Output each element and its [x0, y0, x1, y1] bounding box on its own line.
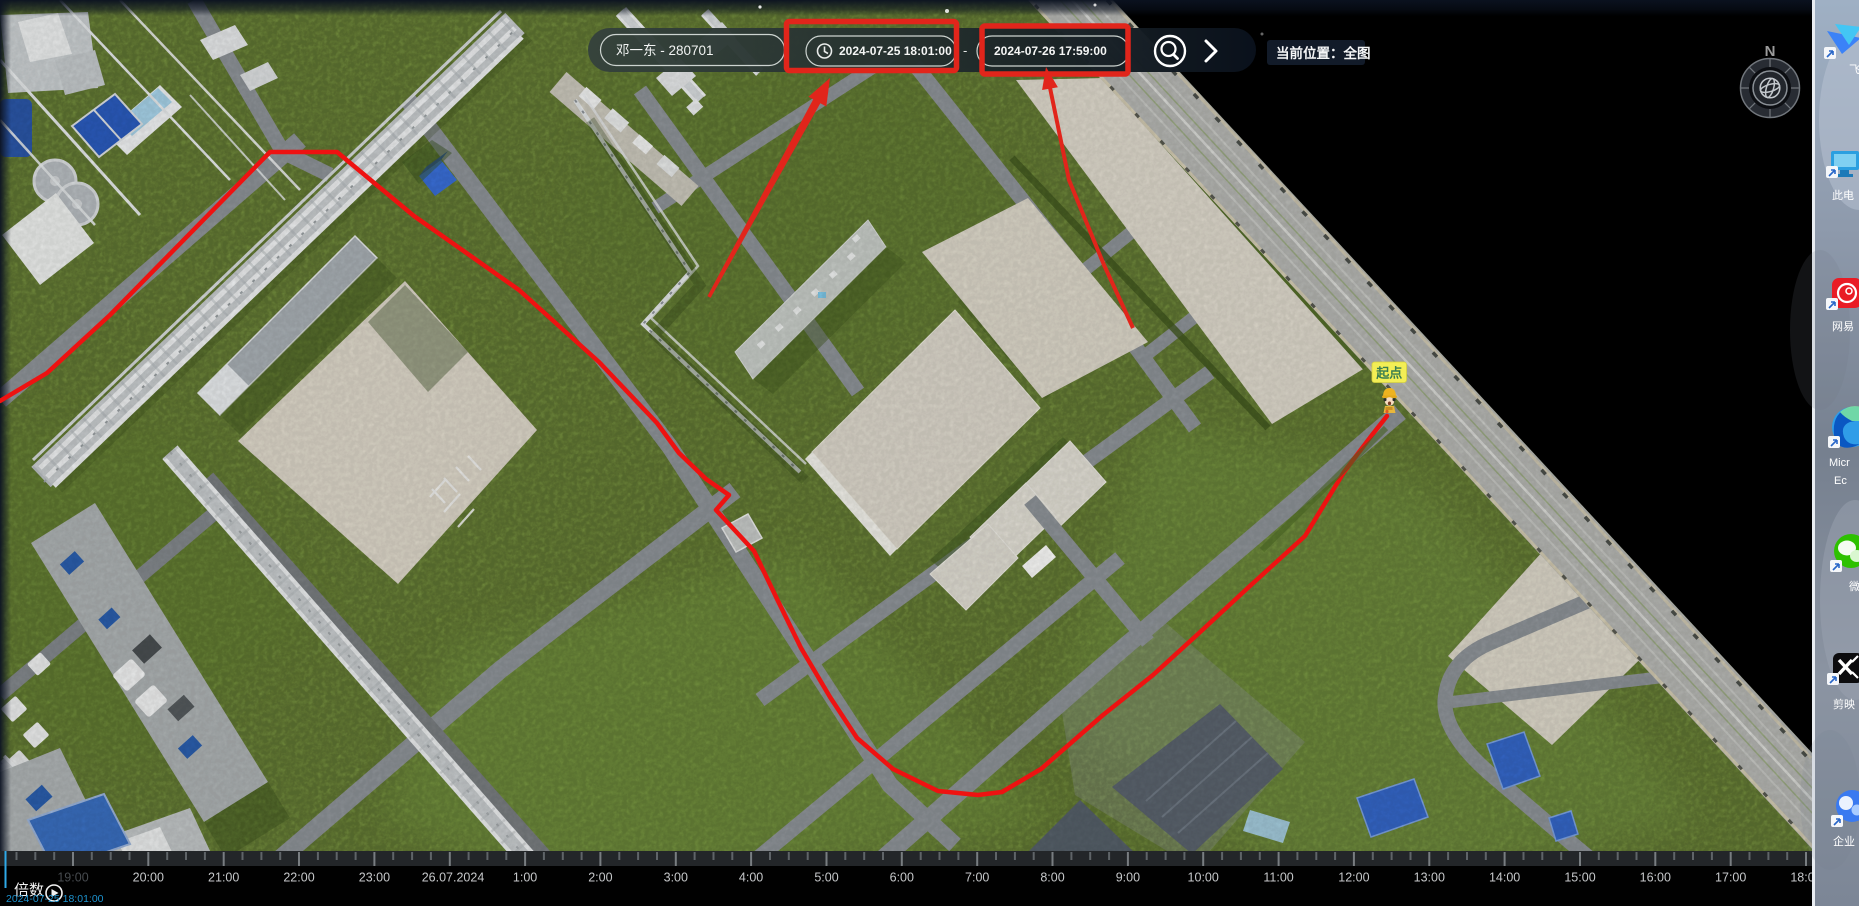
- svg-text:起点: 起点: [1375, 365, 1402, 380]
- svg-text:21:00: 21:00: [208, 871, 239, 885]
- svg-text:2024-07-25 18:01:00: 2024-07-25 18:01:00: [839, 44, 952, 58]
- svg-text:19:00: 19:00: [57, 871, 88, 885]
- svg-text:26.07.2024: 26.07.2024: [422, 871, 485, 885]
- svg-text:此电: 此电: [1832, 189, 1854, 202]
- svg-text:-: -: [963, 43, 967, 58]
- svg-text:网易: 网易: [1832, 320, 1854, 333]
- svg-text:5:00: 5:00: [814, 871, 838, 885]
- svg-text:6:00: 6:00: [890, 871, 914, 885]
- svg-text:20:00: 20:00: [133, 871, 164, 885]
- svg-text:1:00: 1:00: [513, 871, 537, 885]
- svg-text:4:00: 4:00: [739, 871, 763, 885]
- svg-text:当前位置：全图: 当前位置：全图: [1276, 45, 1371, 61]
- svg-text:12:00: 12:00: [1338, 871, 1369, 885]
- svg-text:7:00: 7:00: [965, 871, 989, 885]
- svg-text:邓一东 - 280701: 邓一东 - 280701: [616, 43, 714, 58]
- svg-text:11:00: 11:00: [1263, 871, 1293, 885]
- svg-text:23:00: 23:00: [359, 871, 390, 885]
- svg-text:16:00: 16:00: [1640, 871, 1671, 885]
- svg-text:14:00: 14:00: [1489, 871, 1520, 885]
- svg-text:2024-07-25 18:01:00: 2024-07-25 18:01:00: [6, 893, 104, 905]
- svg-text:8:00: 8:00: [1040, 871, 1064, 885]
- svg-text:22:00: 22:00: [283, 871, 314, 885]
- svg-text:13:00: 13:00: [1414, 871, 1445, 885]
- svg-text:2024-07-26 17:59:00: 2024-07-26 17:59:00: [994, 44, 1107, 58]
- svg-text:微: 微: [1849, 579, 1859, 593]
- svg-text:Ec: Ec: [1834, 475, 1847, 487]
- svg-text:10:00: 10:00: [1188, 871, 1219, 885]
- svg-text:飞: 飞: [1849, 64, 1859, 76]
- svg-text:9:00: 9:00: [1116, 871, 1140, 885]
- svg-text:Micr: Micr: [1829, 457, 1850, 469]
- svg-text:N: N: [1765, 43, 1776, 60]
- svg-text:剪映: 剪映: [1833, 697, 1855, 711]
- svg-text:企业: 企业: [1833, 834, 1855, 848]
- svg-text:3:00: 3:00: [664, 871, 688, 885]
- svg-text:15:00: 15:00: [1564, 871, 1595, 885]
- svg-text:2:00: 2:00: [588, 871, 612, 885]
- svg-text:17:00: 17:00: [1715, 871, 1746, 885]
